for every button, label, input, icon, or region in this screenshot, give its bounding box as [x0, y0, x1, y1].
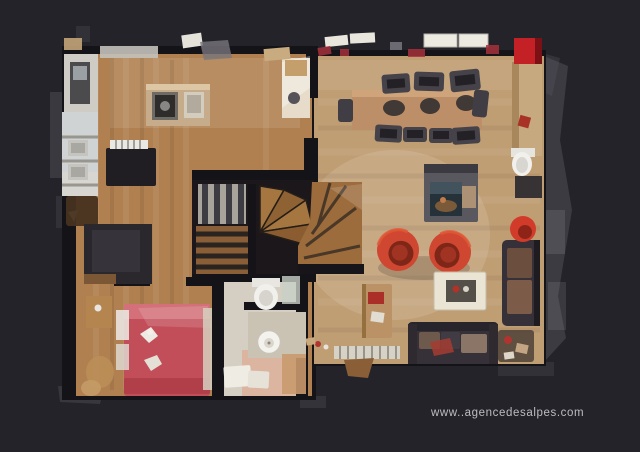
dining-chair-end-right — [472, 89, 490, 117]
kitchen-sink-2-basin — [71, 167, 85, 177]
chaise-cushion — [507, 248, 532, 278]
dining-chair — [429, 128, 453, 143]
nightstand — [86, 296, 112, 328]
exterior-window-box — [424, 34, 457, 47]
coffee-table-tray — [446, 280, 476, 302]
dining-chair — [449, 68, 481, 92]
ghost-right-blob-2 — [548, 282, 566, 330]
floor-white-item — [324, 345, 329, 350]
clutter-white-item — [504, 351, 515, 359]
bed-foot-bench — [203, 308, 212, 390]
exterior-gray-wedge — [200, 40, 232, 60]
closet-inner — [92, 230, 140, 272]
dining-chair — [414, 71, 445, 91]
balustrade — [334, 346, 400, 359]
corner-clutter — [498, 330, 534, 362]
tray-white-item — [463, 286, 469, 292]
dining-chair-seat — [455, 74, 476, 86]
fireplace-flame — [440, 197, 446, 203]
chaise-cushion — [507, 280, 532, 314]
dining-chair — [375, 124, 403, 142]
kitchen-sink-1-basin — [71, 143, 85, 153]
bath-towel-stack — [248, 370, 270, 388]
sofa-cushion — [461, 334, 487, 353]
table-centerpiece-1 — [383, 100, 405, 116]
clutter-pouf — [498, 330, 534, 362]
log-basket — [462, 186, 476, 208]
wall-bedroom-bathroom — [212, 282, 224, 396]
fireplace — [424, 164, 478, 222]
sofa-bottom — [408, 322, 498, 364]
kitchen-pot — [160, 101, 170, 111]
dining-chair-seat — [433, 131, 449, 139]
kitchen-island-sink-basin — [187, 95, 201, 113]
bed-foot-fold — [124, 378, 210, 394]
floor-red-item — [315, 341, 321, 347]
bed-pillow — [116, 344, 129, 370]
nightstand-item — [95, 305, 102, 312]
console-bench-edge — [362, 284, 366, 338]
fireplace-top-lip — [424, 164, 478, 173]
bath-towel-stack — [223, 365, 251, 388]
stair-bottom-edge — [298, 264, 364, 274]
dining-chair-seat — [380, 129, 397, 139]
red-cabinet-shade — [535, 38, 542, 64]
red-curtain-dab — [486, 45, 499, 54]
dark-side-table — [515, 176, 542, 198]
table-centerpiece-2 — [420, 98, 440, 114]
dining-chair — [403, 127, 427, 142]
staircase — [192, 180, 364, 274]
sofa-chaise-right — [502, 240, 540, 326]
tray-red-item — [453, 286, 460, 293]
red-curtain-dab — [408, 49, 425, 57]
kitchen-island-edge — [146, 84, 210, 90]
watermark: www..agencedesalpes.com — [431, 407, 584, 419]
fireplace-logs — [435, 200, 457, 212]
wall-bedroom-top-right — [186, 277, 216, 286]
fireplace-glass-sheen — [430, 182, 462, 194]
sofa-backrest — [408, 322, 498, 331]
bench-red-books — [368, 292, 384, 304]
sofa-armrest-right — [489, 324, 498, 364]
red-side-chair-seat — [518, 225, 532, 239]
floorplan-screenshot: www..agencedesalpes.com — [0, 0, 640, 452]
exterior-white-bench — [350, 32, 375, 43]
kitchen-oven-door — [73, 66, 87, 80]
piano-body — [106, 148, 156, 186]
nook-desk — [285, 60, 307, 76]
hallway-doormat — [66, 196, 98, 226]
clutter-red-item — [504, 336, 512, 344]
closet-wood-shelf — [84, 274, 116, 284]
toilet-seat — [259, 290, 273, 306]
ghost-right-blob-1 — [543, 210, 565, 254]
nook-chair — [288, 92, 300, 104]
bed-pillow — [116, 310, 129, 340]
exterior-window-box — [459, 34, 488, 47]
dining-chair-seat — [419, 77, 439, 87]
vanity-drain — [268, 342, 271, 345]
wall-console-shade — [512, 62, 519, 156]
wc-seat — [516, 157, 528, 173]
exterior-white-bench — [325, 35, 349, 47]
wood-step-below — [344, 358, 374, 378]
red-curtain-dab — [340, 49, 349, 56]
exterior-gray-bit — [390, 42, 402, 50]
dining-chair-seat — [457, 130, 476, 140]
floorplan-3d-top-view — [0, 0, 640, 452]
bed-sheen — [138, 306, 212, 328]
chaise-edge — [534, 240, 540, 326]
kitchen-top-shelf — [100, 46, 158, 58]
exterior-white-item — [181, 33, 203, 49]
bath-wood-mat — [282, 354, 306, 394]
bench-white-paper — [370, 311, 384, 323]
dining-chair — [451, 126, 480, 145]
exterior-item-top-left — [64, 38, 82, 50]
dining-chair — [381, 73, 410, 94]
dining-chair-seat — [407, 130, 423, 138]
towel-swan-head — [147, 329, 153, 335]
dining-chair-end-left — [338, 99, 353, 122]
dining-chair-seat — [387, 78, 406, 88]
stair-center-post — [248, 184, 256, 274]
window-seat-left — [264, 47, 291, 61]
shower-panel — [282, 276, 300, 304]
sofa-armrest-left — [408, 324, 417, 364]
corner-wood-item — [81, 380, 101, 396]
